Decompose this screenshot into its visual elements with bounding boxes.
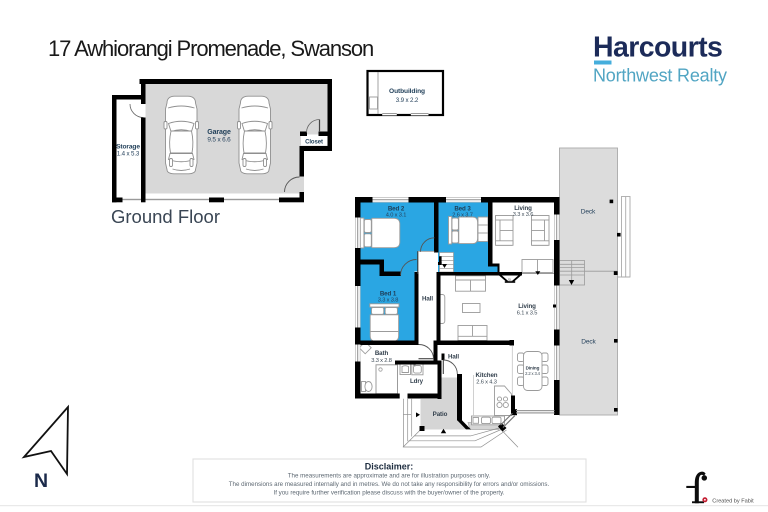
svg-text:4.0 x 3.1: 4.0 x 3.1 [386, 212, 406, 218]
svg-text:Disclaimer:: Disclaimer: [365, 462, 414, 472]
svg-text:Outbuilding: Outbuilding [389, 88, 425, 95]
svg-text:Deck: Deck [581, 209, 596, 216]
svg-text:Ground Floor: Ground Floor [111, 206, 220, 227]
svg-text:2.6 x 3.7: 2.6 x 3.7 [452, 212, 472, 218]
svg-text:3.3 x 2.8: 3.3 x 2.8 [371, 358, 391, 364]
svg-text:9.5 x 6.6: 9.5 x 6.6 [207, 137, 231, 144]
svg-text:Patio: Patio [433, 411, 448, 418]
svg-text:Northwest Realty: Northwest Realty [593, 66, 727, 86]
svg-text:3.3 x 3.8: 3.3 x 3.8 [378, 298, 398, 304]
svg-text:N: N [34, 470, 48, 492]
svg-text:Harcourts: Harcourts [593, 32, 722, 64]
svg-text:Bath: Bath [375, 350, 389, 357]
svg-text:17 Awhiorangi Promenade, Swans: 17 Awhiorangi Promenade, Swanson [48, 36, 373, 61]
svg-text:Hall: Hall [448, 354, 459, 361]
svg-text:Living: Living [514, 205, 532, 212]
svg-text:Ldry: Ldry [410, 378, 424, 385]
svg-text:Closet: Closet [305, 140, 323, 146]
svg-text:Bed 1: Bed 1 [380, 291, 397, 298]
svg-text:SL: SL [508, 278, 512, 282]
svg-text:2.2 x 3.4: 2.2 x 3.4 [525, 371, 541, 376]
svg-text:Deck: Deck [581, 339, 596, 346]
svg-text:1.4 x 5.3: 1.4 x 5.3 [117, 151, 140, 158]
svg-text:If you require further verific: If you require further verification plea… [273, 490, 504, 497]
svg-text:Living: Living [518, 303, 536, 310]
svg-text:Hall: Hall [422, 296, 433, 303]
svg-text:Kitchen: Kitchen [476, 372, 498, 379]
svg-text:The dimensions are measured in: The dimensions are measured internally a… [229, 481, 550, 488]
svg-text:2.6 x 4.3: 2.6 x 4.3 [476, 380, 496, 386]
svg-text:3.3 x 3.6: 3.3 x 3.6 [513, 212, 533, 218]
svg-text:Storage: Storage [116, 144, 140, 151]
svg-text:6.1 x 3.5: 6.1 x 3.5 [517, 310, 537, 316]
svg-text:The measurements are approxima: The measurements are approximate and are… [288, 473, 491, 480]
svg-text:Dining: Dining [526, 366, 540, 371]
svg-text:Created by Fabit: Created by Fabit [712, 499, 754, 505]
svg-text:3.9 x 2.2: 3.9 x 2.2 [396, 97, 419, 104]
svg-text:Garage: Garage [207, 129, 231, 136]
